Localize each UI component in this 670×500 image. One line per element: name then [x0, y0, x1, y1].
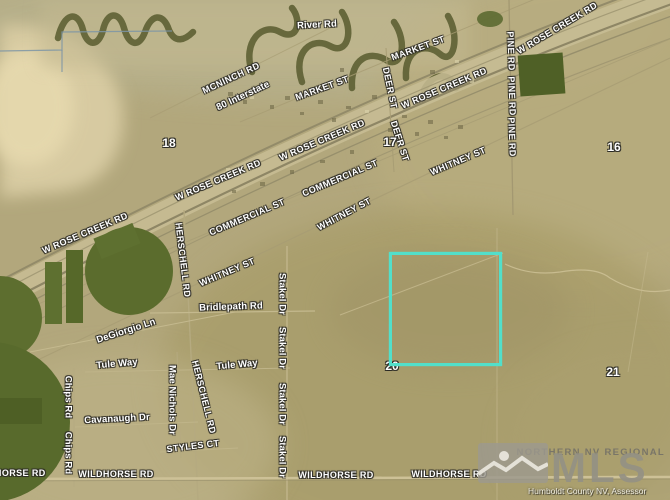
road-label: WILDHORSE RD — [78, 469, 153, 479]
road-label: Mae Nichols Dr — [167, 365, 178, 435]
road-label: DeGiorgio Ln — [95, 316, 157, 345]
map-attribution: Humboldt County NV, Assessor — [528, 486, 646, 496]
road-label: Cavanaugh Dr — [84, 412, 150, 426]
road-label: WHITNEY ST — [429, 145, 488, 177]
road-label: COMMERCIAL ST — [301, 158, 380, 199]
road-label: HERSCHELL RD — [173, 222, 192, 298]
road-label: HERSCHELL RD — [190, 359, 218, 434]
section-number: 18 — [162, 136, 175, 150]
map-labels-layer: River RdMCNINCH RD80 InterstateMARKET ST… — [0, 0, 670, 500]
road-label: Chips Rd — [63, 432, 74, 475]
road-label: WILDHORSE RD — [411, 469, 486, 479]
road-label: W ROSE CREEK RD — [515, 0, 599, 56]
road-label: W ROSE CREEK RD — [174, 157, 263, 202]
road-label: WILDHORSE RD — [0, 468, 46, 478]
road-label: Stakel Dr — [277, 327, 288, 369]
aerial-map-image[interactable]: River RdMCNINCH RD80 InterstateMARKET ST… — [0, 0, 670, 500]
section-number: 21 — [606, 365, 619, 379]
road-label: MARKET ST — [390, 34, 446, 63]
road-label: Stakel Dr — [277, 273, 288, 315]
road-label: Bridlepath Rd — [199, 300, 263, 313]
highlighted-parcel-outline — [389, 252, 502, 366]
section-number: 17 — [383, 135, 396, 149]
road-label: MARKET ST — [294, 74, 350, 103]
section-number: 16 — [607, 140, 620, 154]
road-label: STYLES CT — [166, 438, 220, 454]
road-label: WILDHORSE RD — [298, 470, 373, 480]
road-label: Stakel Dr — [277, 383, 288, 425]
road-label: Stakel Dr — [277, 436, 288, 478]
photo-placeholder-icon — [478, 443, 548, 483]
road-label: PINE RD — [506, 76, 517, 116]
road-label: PINE RD — [505, 31, 516, 71]
road-label: PINE RD — [506, 117, 517, 157]
mls-logo-text: MLS — [551, 447, 649, 489]
road-label: DEER ST — [381, 67, 399, 110]
road-label: COMMERCIAL ST — [208, 197, 287, 238]
road-label: Tule Way — [96, 357, 138, 372]
road-label: Tule Way — [216, 358, 258, 373]
road-label: WHITNEY ST — [198, 256, 257, 288]
road-label: W ROSE CREEK RD — [400, 65, 489, 110]
road-label: W ROSE CREEK RD — [41, 210, 130, 255]
road-label: River Rd — [297, 18, 337, 31]
road-label: Chips Rd — [63, 376, 74, 419]
road-label: W ROSE CREEK RD — [278, 117, 367, 162]
road-label: WHITNEY ST — [315, 196, 372, 233]
